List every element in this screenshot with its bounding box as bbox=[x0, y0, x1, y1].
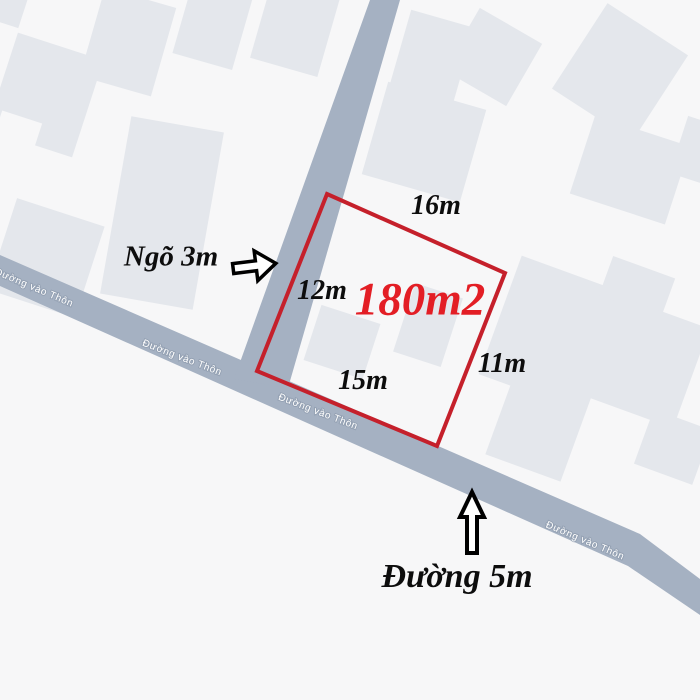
plot-side-bottom-label: 15m bbox=[338, 367, 388, 395]
plot-side-top-label: 16m bbox=[411, 192, 461, 220]
map-canvas: Đường vào Thôn Đường vào Thôn Đường vào … bbox=[0, 0, 700, 700]
plot-side-right-label: 11m bbox=[478, 350, 526, 378]
map-base-svg: Đường vào Thôn Đường vào Thôn Đường vào … bbox=[0, 0, 700, 700]
plot-area-label: 180m2 bbox=[355, 277, 486, 324]
road-width-label: Đường 5m bbox=[381, 560, 532, 594]
alley-width-label: Ngõ 3m bbox=[124, 243, 218, 272]
plot-side-left-label: 12m bbox=[297, 277, 347, 305]
